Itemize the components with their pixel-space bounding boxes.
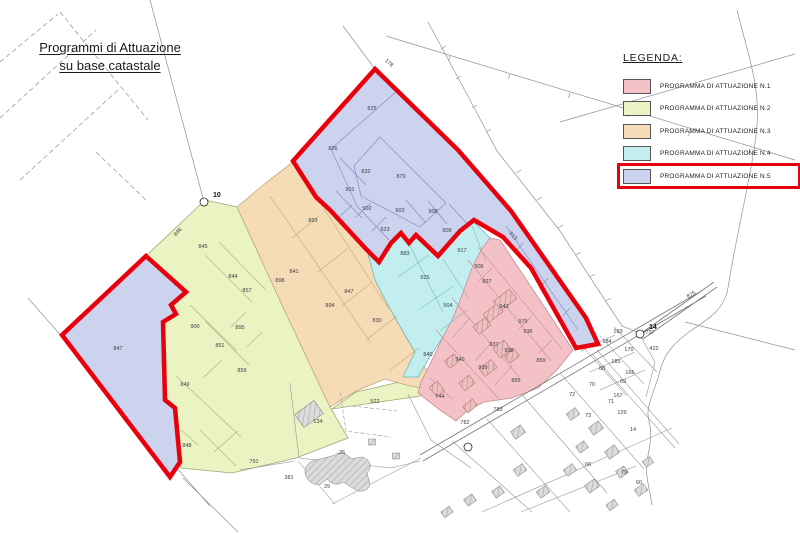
parcel-label-894: 894 xyxy=(325,303,334,309)
legend-heading: LEGENDA: xyxy=(623,52,795,64)
benchmark-circle-10 xyxy=(200,198,208,206)
parcel-label-791: 791 xyxy=(249,459,258,465)
benchmark-circle-14 xyxy=(636,330,644,338)
parcel-label-66: 66 xyxy=(585,462,591,468)
parcel-label-903: 903 xyxy=(395,208,404,214)
legend-item-n5: PROGRAMMA DI ATTUAZIONE N.5 xyxy=(623,169,795,183)
parcel-label-902: 902 xyxy=(362,206,371,212)
legend-item-n2: PROGRAMMA DI ATTUAZIONE N.2 xyxy=(623,102,795,116)
parcel-label-69: 69 xyxy=(620,379,626,385)
parcel-label-183: 183 xyxy=(613,329,622,335)
parcel-label-900: 900 xyxy=(190,324,199,330)
parcel-label-875: 875 xyxy=(686,290,697,300)
map-title-line1: Programmi di Attuazione xyxy=(39,40,181,55)
parcel-label-895: 895 xyxy=(235,325,244,331)
parcel-label-936: 936 xyxy=(523,329,532,335)
parcel-label-178: 178 xyxy=(383,58,394,69)
parcel-label-851: 851 xyxy=(215,343,224,349)
parcel-label-826: 826 xyxy=(328,146,337,152)
legend-swatch-n4 xyxy=(623,146,651,161)
parcel-label-825: 825 xyxy=(367,106,376,112)
legend-swatch-n3 xyxy=(623,124,651,139)
parcel-label-847: 847 xyxy=(344,289,353,295)
legend-item-label: PROGRAMMA DI ATTUAZIONE N.1 xyxy=(660,83,771,90)
parcel-label-939: 939 xyxy=(478,365,487,371)
parcel-label-883: 883 xyxy=(400,251,409,257)
parcel-label-845: 845 xyxy=(198,244,207,250)
parcel-label-917: 917 xyxy=(457,248,466,254)
cadastral-plan-screenshot: 8258268328799019029039089239098138478468… xyxy=(0,0,800,533)
parcel-label-72: 72 xyxy=(569,392,575,398)
parcel-label-167: 167 xyxy=(613,393,622,399)
parcel-label-848: 848 xyxy=(182,443,191,449)
parcel-label-14: 14 xyxy=(630,427,636,433)
legend-swatch-n5 xyxy=(623,169,651,184)
legend: LEGENDA: PROGRAMMA DI ATTUAZIONE N.1PROG… xyxy=(623,52,795,192)
parcel-label-522: 522 xyxy=(370,399,379,405)
legend-item-label: PROGRAMMA DI ATTUAZIONE N.3 xyxy=(660,128,771,135)
parcel-label-909: 909 xyxy=(442,228,451,234)
parcel-label-975: 975 xyxy=(518,319,527,325)
parcel-label-859: 859 xyxy=(237,368,246,374)
parcel-label-832: 832 xyxy=(361,169,370,175)
parcel-label-940: 940 xyxy=(455,357,464,363)
parcel-label-29: 29 xyxy=(324,484,330,490)
map-title: Programmi di Attuazione su base catastal… xyxy=(28,39,192,74)
parcel-label-938: 938 xyxy=(504,348,513,354)
benchmark-circle xyxy=(464,443,472,451)
parcel-label-68: 68 xyxy=(599,366,605,372)
parcel-label-70: 70 xyxy=(589,382,595,388)
parcel-label-184: 184 xyxy=(602,339,611,345)
parcel-label-830: 830 xyxy=(372,318,381,324)
parcel-label-857: 857 xyxy=(242,288,251,294)
zones xyxy=(62,69,598,477)
parcel-label-908: 908 xyxy=(428,209,437,215)
parcel-label-841: 841 xyxy=(289,269,298,275)
parcel-label-844: 844 xyxy=(228,274,237,280)
parcel-label-744: 744 xyxy=(435,394,444,400)
legend-swatch-n2 xyxy=(623,101,651,116)
legend-item-label: PROGRAMMA DI ATTUAZIONE N.2 xyxy=(660,105,771,112)
parcel-label-422: 422 xyxy=(649,346,658,352)
parcel-label-134: 134 xyxy=(313,419,322,425)
parcel-label-381: 381 xyxy=(284,475,293,481)
parcel-label-847: 847 xyxy=(113,346,122,352)
parcel-label-840: 840 xyxy=(423,352,432,358)
legend-item-n1: PROGRAMMA DI ATTUAZIONE N.1 xyxy=(623,79,795,93)
parcel-label-849: 849 xyxy=(180,382,189,388)
parcel-label-827: 827 xyxy=(482,279,491,285)
parcel-label-904: 904 xyxy=(443,303,452,309)
parcel-label-906: 906 xyxy=(474,264,483,270)
parcel-label-782: 782 xyxy=(460,420,469,426)
parcel-label-26: 26 xyxy=(339,450,345,456)
map-title-line2: su base catastale xyxy=(59,58,160,73)
parcel-label-71: 71 xyxy=(608,399,614,405)
parcel-label-129: 129 xyxy=(617,410,626,416)
parcel-label-170: 170 xyxy=(624,347,633,353)
parcel-label-60: 60 xyxy=(636,480,642,486)
parcel-label-865: 865 xyxy=(511,378,520,384)
parcel-label-879: 879 xyxy=(396,174,405,180)
parcel-label-898: 898 xyxy=(275,278,284,284)
legend-items: PROGRAMMA DI ATTUAZIONE N.1PROGRAMMA DI … xyxy=(623,79,795,183)
parcel-label-79: 79 xyxy=(621,470,627,476)
parcel-label-893: 893 xyxy=(308,218,317,224)
parcel-label-73: 73 xyxy=(585,413,591,419)
legend-item-n3: PROGRAMMA DI ATTUAZIONE N.3 xyxy=(623,124,795,138)
parcel-label-923: 923 xyxy=(380,227,389,233)
legend-swatch-n1 xyxy=(623,79,651,94)
parcel-label-937: 937 xyxy=(489,342,498,348)
parcel-label-185: 185 xyxy=(611,359,620,365)
benchmark-label-14: 14 xyxy=(649,324,657,331)
parcel-label-943: 943 xyxy=(499,304,508,310)
parcel-label-901: 901 xyxy=(345,187,354,193)
legend-item-label: PROGRAMMA DI ATTUAZIONE N.5 xyxy=(660,173,771,180)
parcel-label-166: 166 xyxy=(625,370,634,376)
parcel-label-859: 859 xyxy=(536,358,545,364)
legend-item-label: PROGRAMMA DI ATTUAZIONE N.4 xyxy=(660,150,771,157)
parcel-label-925: 925 xyxy=(420,275,429,281)
legend-item-n4: PROGRAMMA DI ATTUAZIONE N.4 xyxy=(623,147,795,161)
benchmark-label-10: 10 xyxy=(213,192,221,199)
parcel-label-783: 783 xyxy=(493,407,502,413)
